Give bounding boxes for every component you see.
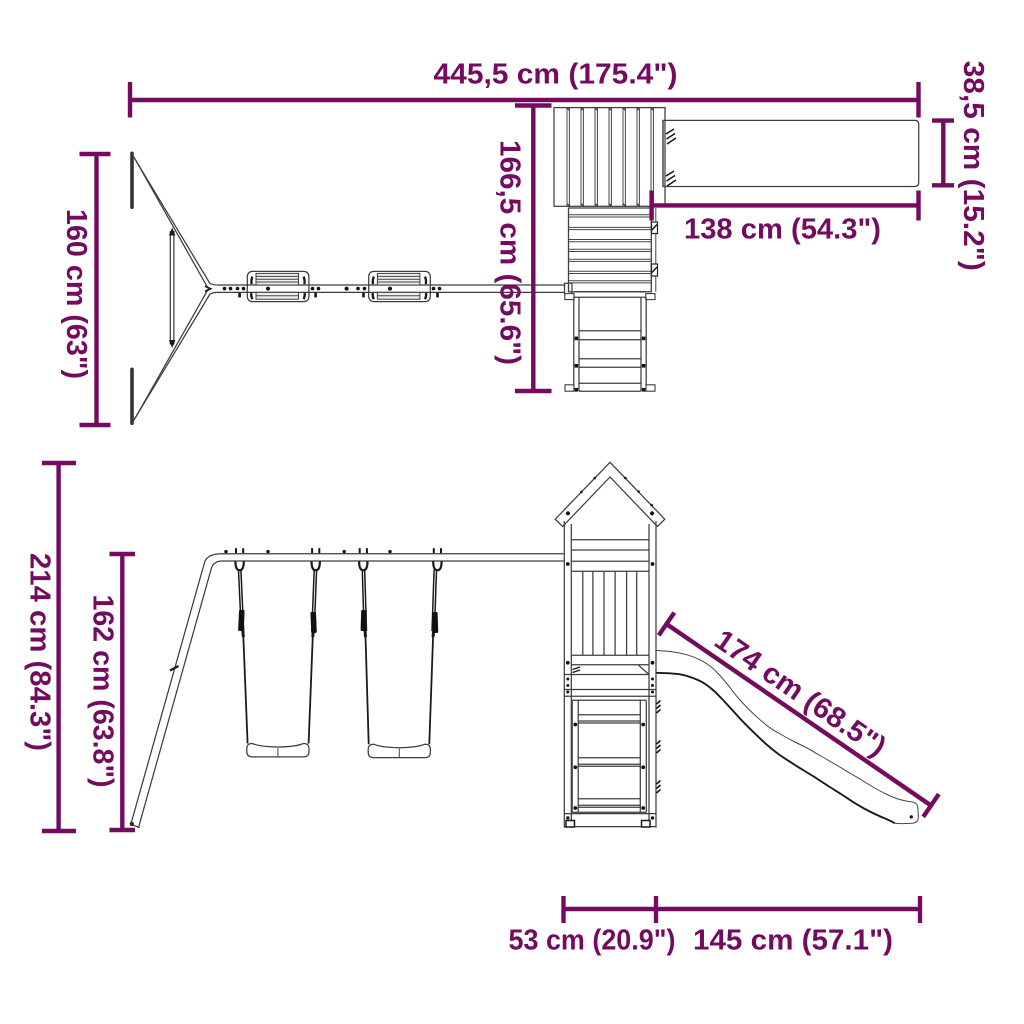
svg-text:138 cm (54.3"): 138 cm (54.3") — [684, 214, 881, 246]
svg-text:145 cm (57.1"): 145 cm (57.1") — [693, 925, 893, 957]
svg-text:53 cm (20.9"): 53 cm (20.9") — [509, 925, 676, 957]
svg-text:162 cm (63.8"): 162 cm (63.8") — [87, 595, 119, 788]
svg-text:160 cm (63"): 160 cm (63") — [60, 209, 92, 379]
svg-text:214 cm (84.3"): 214 cm (84.3") — [24, 553, 56, 751]
svg-text:38,5 cm (15.2"): 38,5 cm (15.2") — [957, 61, 989, 271]
svg-text:445,5 cm (175.4"): 445,5 cm (175.4") — [434, 59, 678, 91]
svg-text:166,5 cm (65.6"): 166,5 cm (65.6") — [494, 140, 526, 365]
